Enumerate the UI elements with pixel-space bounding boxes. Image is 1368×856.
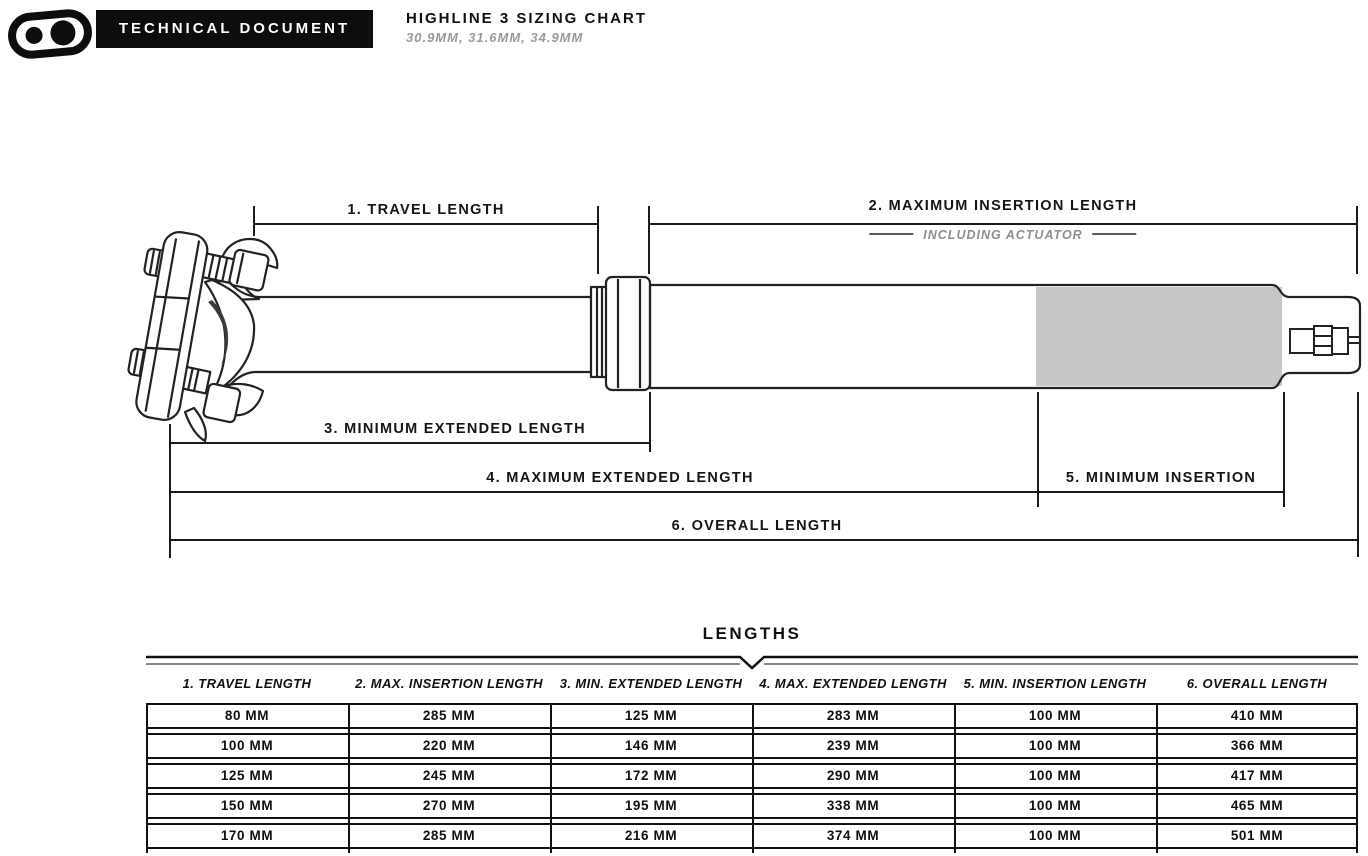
col-header-min-extended: 3. MIN. EXTENDED LENGTH bbox=[550, 672, 752, 696]
table-column-rule bbox=[1156, 703, 1158, 853]
cell-max-extended: 239 MM bbox=[752, 735, 954, 757]
dim-max-extended-line bbox=[170, 392, 1284, 507]
table-column-rule bbox=[348, 703, 350, 853]
cell-travel: 125 MM bbox=[146, 765, 348, 787]
label-min-insertion: 5. MINIMUM INSERTION bbox=[1066, 470, 1256, 486]
lengths-table: 80 MM 285 MM 125 MM 283 MM 100 MM 410 MM… bbox=[146, 703, 1358, 853]
cell-min-insertion: 100 MM bbox=[954, 705, 1156, 727]
table-column-rule bbox=[752, 703, 754, 853]
cell-max-extended: 290 MM bbox=[752, 765, 954, 787]
label-including-actuator: INCLUDING ACTUATOR bbox=[859, 228, 1146, 242]
label-overall-length: 6. OVERALL LENGTH bbox=[672, 518, 843, 534]
label-max-insertion-length: 2. MAXIMUM INSERTION LENGTH bbox=[869, 198, 1138, 214]
cell-travel: 170 MM bbox=[146, 825, 348, 847]
table-column-rule bbox=[550, 703, 552, 853]
col-header-max-insertion: 2. MAX. INSERTION LENGTH bbox=[348, 672, 550, 696]
cell-max-extended: 283 MM bbox=[752, 705, 954, 727]
cell-min-extended: 146 MM bbox=[550, 735, 752, 757]
cell-min-insertion: 100 MM bbox=[954, 735, 1156, 757]
technical-document-page: TECHNICAL DOCUMENT HIGHLINE 3 SIZING CHA… bbox=[0, 0, 1368, 856]
insertion-zone bbox=[1036, 287, 1282, 386]
cell-min-insertion: 100 MM bbox=[954, 795, 1156, 817]
cell-max-extended: 374 MM bbox=[752, 825, 954, 847]
cell-travel: 150 MM bbox=[146, 795, 348, 817]
table-column-rule bbox=[954, 703, 956, 853]
col-header-travel-length: 1. TRAVEL LENGTH bbox=[146, 672, 348, 696]
label-min-extended-length: 3. MINIMUM EXTENDED LENGTH bbox=[324, 421, 586, 437]
cell-max-insertion: 285 MM bbox=[348, 705, 550, 727]
table-title: LENGTHS bbox=[703, 624, 802, 644]
upper-tube bbox=[230, 284, 592, 385]
cell-min-insertion: 100 MM bbox=[954, 825, 1156, 847]
cell-min-extended: 216 MM bbox=[550, 825, 752, 847]
cell-max-insertion: 285 MM bbox=[348, 825, 550, 847]
cell-travel: 80 MM bbox=[146, 705, 348, 727]
saddle-clamp bbox=[128, 230, 277, 441]
label-travel-length: 1. TRAVEL LENGTH bbox=[347, 202, 504, 218]
cell-overall: 410 MM bbox=[1156, 705, 1358, 727]
table-header-row: 1. TRAVEL LENGTH 2. MAX. INSERTION LENGT… bbox=[146, 672, 1358, 696]
col-header-min-insertion: 5. MIN. INSERTION LENGTH bbox=[954, 672, 1156, 696]
cell-overall: 366 MM bbox=[1156, 735, 1358, 757]
cell-min-extended: 125 MM bbox=[550, 705, 752, 727]
cell-min-extended: 172 MM bbox=[550, 765, 752, 787]
table-top-rule bbox=[146, 654, 1358, 674]
cell-max-insertion: 220 MM bbox=[348, 735, 550, 757]
col-header-overall-length: 6. OVERALL LENGTH bbox=[1156, 672, 1358, 696]
cell-overall: 465 MM bbox=[1156, 795, 1358, 817]
cell-travel: 100 MM bbox=[146, 735, 348, 757]
cell-max-insertion: 270 MM bbox=[348, 795, 550, 817]
cell-min-extended: 195 MM bbox=[550, 795, 752, 817]
col-header-max-extended: 4. MAX. EXTENDED LENGTH bbox=[752, 672, 954, 696]
label-max-extended-length: 4. MAXIMUM EXTENDED LENGTH bbox=[486, 470, 753, 486]
cell-max-extended: 338 MM bbox=[752, 795, 954, 817]
cell-min-insertion: 100 MM bbox=[954, 765, 1156, 787]
cell-max-insertion: 245 MM bbox=[348, 765, 550, 787]
cell-overall: 417 MM bbox=[1156, 765, 1358, 787]
seal-collar bbox=[591, 277, 650, 390]
actuator bbox=[1290, 326, 1359, 355]
table-column-rule bbox=[146, 703, 148, 853]
cell-overall: 501 MM bbox=[1156, 825, 1358, 847]
table-column-rule bbox=[1356, 703, 1358, 853]
